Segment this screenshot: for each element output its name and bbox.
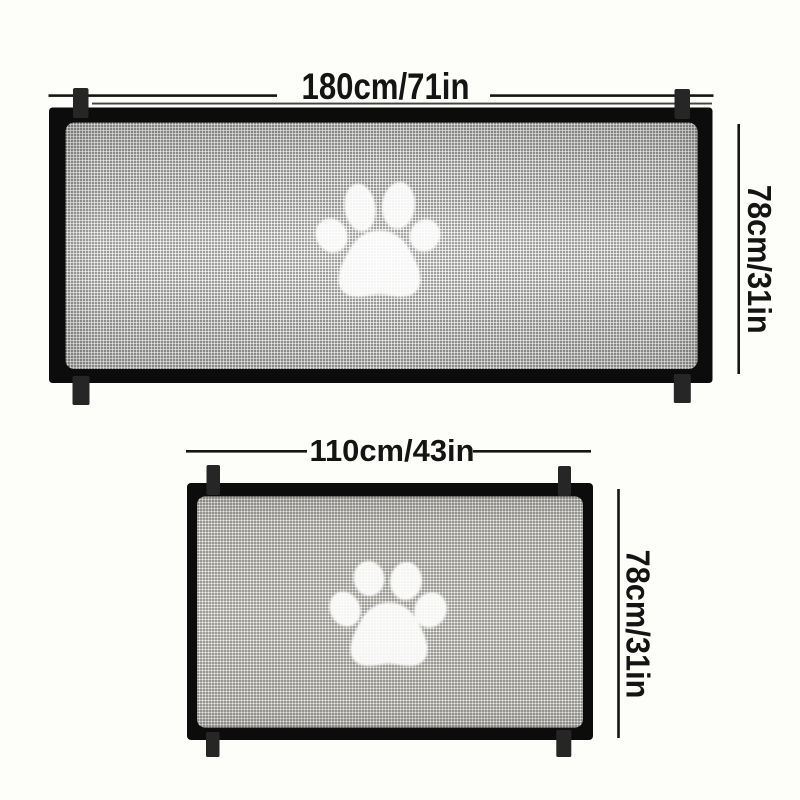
svg-text:180cm/71in: 180cm/71in [302, 66, 470, 107]
svg-text:110cm/43in: 110cm/43in [310, 433, 475, 468]
svg-text:78cm/31in: 78cm/31in [620, 550, 657, 699]
svg-text:78cm/31in: 78cm/31in [741, 185, 778, 334]
